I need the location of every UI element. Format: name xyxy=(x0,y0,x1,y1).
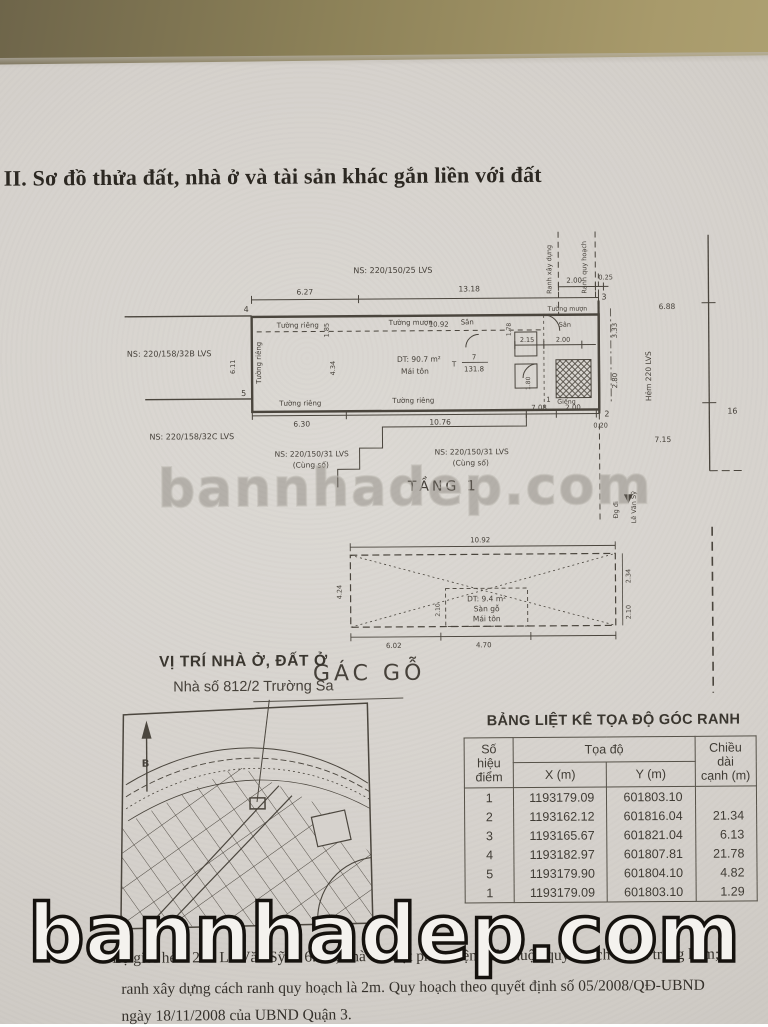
cell-x: 1193165.67 xyxy=(514,825,607,845)
cell-y: 601807.81 xyxy=(607,844,695,864)
cell-y: 601804.10 xyxy=(607,863,695,883)
coordinate-table-block: BẢNG LIỆT KÊ TỌA ĐỘ GÓC RANH Số hiệu điể… xyxy=(463,711,764,903)
col-length-line2: cạnh (m) xyxy=(701,768,750,782)
location-heading: VỊ TRÍ NHÀ Ở, ĐẤT Ở xyxy=(159,652,328,671)
ranh-quy-hoach-label: Ranh quy hoạch xyxy=(580,241,588,294)
table-row: 1 1193179.09 601803.10 xyxy=(464,786,756,808)
gac-area-label: DT: 9.4 m² xyxy=(467,594,506,603)
ranh-xay-dung-label: Ranh xây dựng xyxy=(545,245,553,294)
wall-tuong-rieng-bot1: Tường riêng xyxy=(278,399,321,407)
cell-y: 601821.04 xyxy=(607,825,695,845)
dim-180: 1.80 xyxy=(525,376,532,390)
dim-1076: 10.76 xyxy=(429,418,451,427)
room-area-label: DT: 90.7 m² xyxy=(397,355,441,364)
gieng-label: Giếng xyxy=(557,398,576,406)
cell-x: 1193179.09 xyxy=(514,787,607,807)
san-label-2: Sân xyxy=(559,321,571,329)
table-row: 5 1193179.90 601804.10 4.82 xyxy=(465,862,757,883)
ns-32b-label: NS: 220/158/32B LVS xyxy=(127,349,212,359)
dim-200-san: 2.00 xyxy=(556,336,571,344)
room-roof-label: Mái tôn xyxy=(401,367,429,376)
parcel-no: 7 xyxy=(472,353,477,361)
col-point-header: Số hiệu điểm xyxy=(464,738,514,788)
coordinate-table-title: BẢNG LIỆT KÊ TỌA ĐỘ GÓC RANH xyxy=(463,711,763,729)
cell-x: 1193179.90 xyxy=(514,863,607,883)
dim-16: 16 xyxy=(727,407,737,416)
gac-roof-label: Mái tôn xyxy=(473,614,501,623)
wall-tuong-rieng-bot2: Tường riêng xyxy=(391,397,434,405)
cell-length xyxy=(695,786,757,806)
col-point-line1: Số hiệu xyxy=(477,742,501,770)
cell-y: 601816.04 xyxy=(607,806,695,826)
cell-point: 2 xyxy=(465,807,514,826)
hem-label: Hẻm 220 LVS xyxy=(644,351,653,401)
plan-point-5: 5 xyxy=(241,389,246,398)
watermark-middle: bannhadep.com xyxy=(158,456,628,519)
cell-point: 5 xyxy=(465,864,514,883)
cell-length: 6.13 xyxy=(695,824,757,843)
plan-point-2: 2 xyxy=(604,409,609,418)
gac-dim-top: 10.92 xyxy=(470,536,490,544)
plan-point-3: 3 xyxy=(601,292,606,301)
col-length-header: Chiều dài cạnh (m) xyxy=(695,736,757,786)
dim-280: 2.80 xyxy=(611,373,619,389)
wall-tuong-rieng-left: Tường riêng xyxy=(255,342,263,385)
wall-tuong-rieng-top: Tường riêng xyxy=(276,321,319,329)
cell-y: 601803.10 xyxy=(607,786,695,806)
plan-point-4: 4 xyxy=(244,305,249,314)
section-title: II. Sơ đồ thửa đất, nhà ở và tài sản khá… xyxy=(4,160,754,191)
parcel-area: 131.8 xyxy=(464,365,484,373)
parcel-t: T xyxy=(451,360,457,368)
dim-025: 0.25 xyxy=(598,273,613,281)
gac-floor-label: Sàn gỗ xyxy=(474,604,500,613)
coordinate-table: Số hiệu điểm Tọa độ Chiều dài cạnh (m) X… xyxy=(464,735,758,903)
table-row: 2 1193162.12 601816.04 21.34 xyxy=(465,805,757,826)
gac-dim-right-bot: 2.10 xyxy=(625,605,633,620)
wall-tuong-muon-top: Tường mượn xyxy=(388,319,433,327)
ns-32c-label: NS: 220/158/32C LVS xyxy=(149,432,234,442)
col-x-header: X (m) xyxy=(514,762,607,788)
dim-333: 3.33 xyxy=(611,323,619,339)
dim-1318: 13.18 xyxy=(458,284,480,293)
wall-tuong-muon-right: Tường mượn xyxy=(547,305,588,313)
ns-25-label: NS: 220/150/25 LVS xyxy=(353,266,432,276)
dim-630: 6.30 xyxy=(293,420,310,429)
location-address: Nhà số 812/2 Trường Sa xyxy=(173,678,333,695)
dim-434: 4.34 xyxy=(329,361,337,376)
north-label: B xyxy=(142,759,150,770)
dim-020: 0.20 xyxy=(593,421,608,429)
col-coord-header: Tọa độ xyxy=(513,736,694,762)
ns-31-right-label: NS: 220/150/31 LVS xyxy=(435,447,509,457)
cell-point: 3 xyxy=(465,826,514,845)
col-y-header: Y (m) xyxy=(607,761,695,787)
mezzanine-drawing: 10.92 4.24 2.34 2.10 2.10 6.02 4.70 DT: … xyxy=(0,522,768,702)
dim-611: 6.11 xyxy=(229,360,237,375)
cell-length: 21.78 xyxy=(695,843,757,862)
gac-dim-left: 4.24 xyxy=(336,585,344,600)
dim-688: 6.88 xyxy=(659,302,676,311)
plan-point-1: 1 xyxy=(546,396,551,404)
cell-point: 1 xyxy=(464,788,513,808)
dim-215: 2.15 xyxy=(520,336,535,344)
cell-length: 21.34 xyxy=(695,805,757,824)
watermark-large: bannhadep.com xyxy=(14,888,754,980)
table-row: 3 1193165.67 601821.04 6.13 xyxy=(465,824,757,845)
cell-point: 4 xyxy=(465,845,514,864)
document-content: II. Sơ đồ thửa đất, nhà ở và tài sản khá… xyxy=(0,0,768,1027)
col-point-line2: điểm xyxy=(475,770,502,784)
dim-708: 7.08 xyxy=(531,404,547,412)
dim-627: 6.27 xyxy=(296,287,313,296)
dim-185: 1.85 xyxy=(323,323,331,338)
dim-178: 1.78 xyxy=(506,323,513,337)
cell-x: 1193182.97 xyxy=(514,844,607,864)
gac-dim-right-top: 2.34 xyxy=(624,569,632,584)
san-label-1: Sân xyxy=(461,318,474,326)
cell-x: 1193162.12 xyxy=(514,806,607,826)
dim-715: 7.15 xyxy=(654,435,671,444)
gac-dim-inner: 2.10 xyxy=(435,603,442,617)
gac-dim-bot-left: 6.02 xyxy=(386,642,402,650)
gac-dim-bot-right: 4.70 xyxy=(476,641,492,649)
table-row: 4 1193182.97 601807.81 21.78 xyxy=(465,843,757,864)
col-length-line1: Chiều dài xyxy=(709,740,742,768)
cell-length: 4.82 xyxy=(696,862,758,881)
